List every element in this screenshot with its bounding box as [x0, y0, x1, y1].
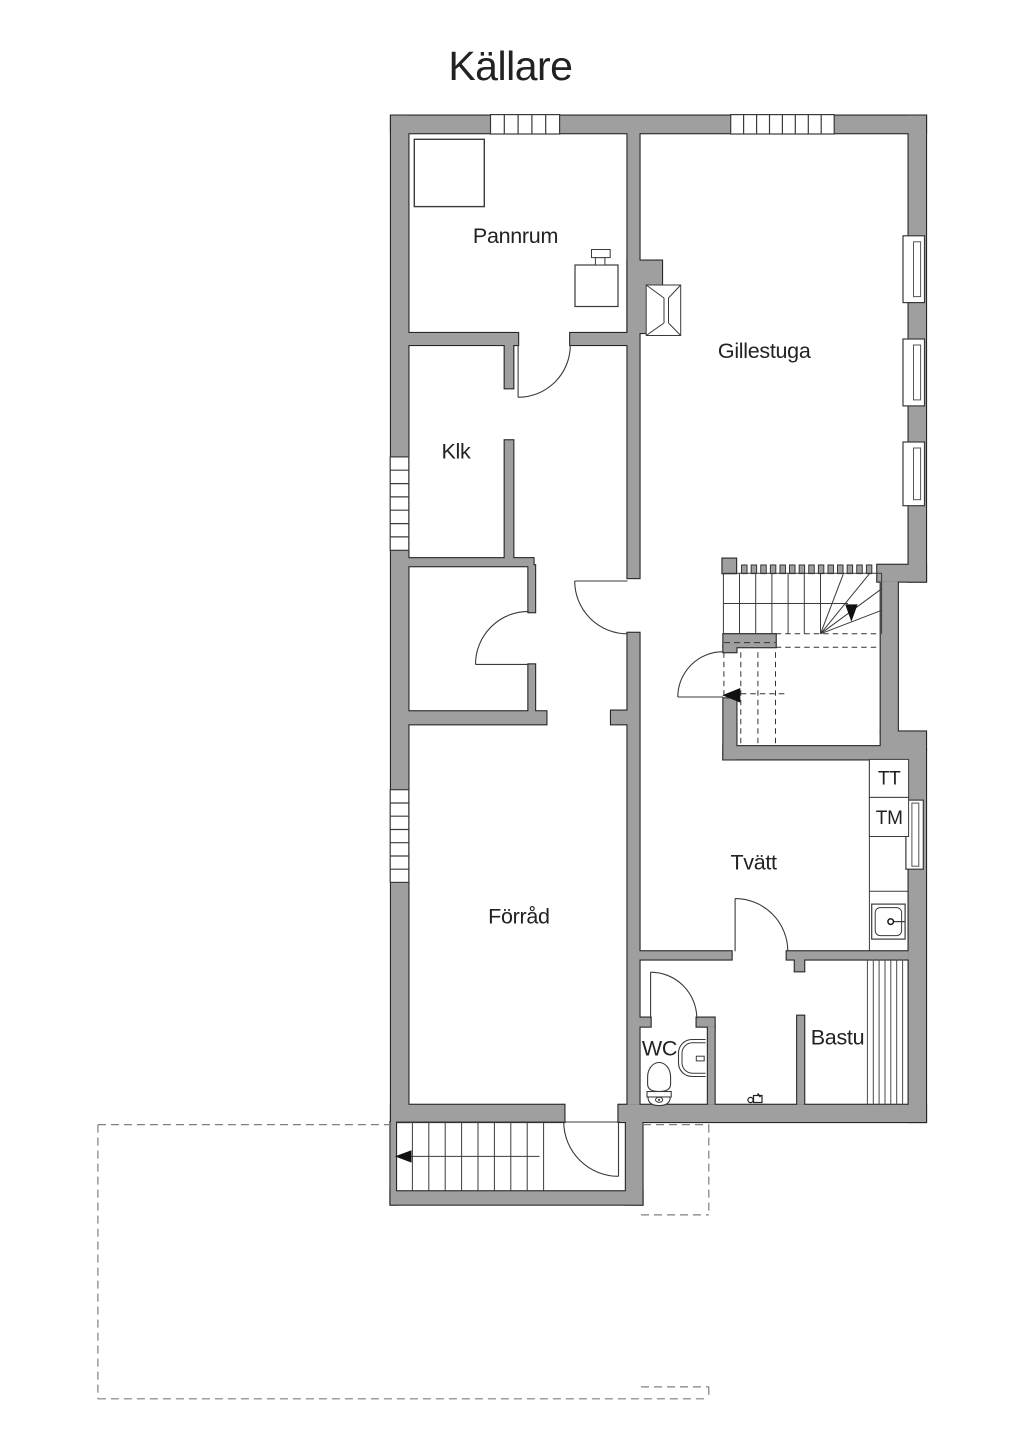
svg-text:Gillestuga: Gillestuga — [718, 339, 811, 363]
svg-text:Bastu: Bastu — [811, 1026, 864, 1050]
svg-text:Källare: Källare — [448, 43, 572, 89]
svg-text:TM: TM — [876, 808, 903, 829]
svg-text:Pannrum: Pannrum — [473, 224, 558, 248]
svg-text:Förråd: Förråd — [488, 905, 550, 929]
svg-text:Klk: Klk — [442, 440, 472, 464]
svg-text:Tvätt: Tvätt — [730, 851, 777, 875]
svg-text:TT: TT — [878, 769, 901, 790]
svg-text:WC: WC — [642, 1037, 677, 1061]
